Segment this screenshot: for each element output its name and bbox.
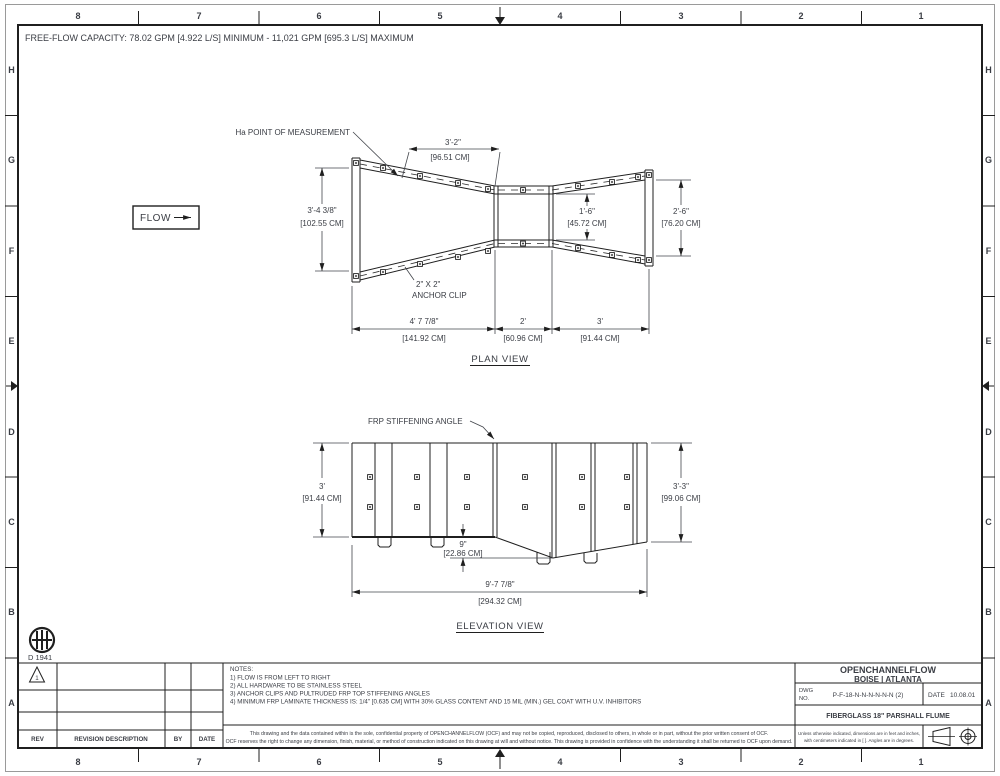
dim-throat-width: 1'-6" [45.72 CM] (556, 194, 607, 240)
grid-row-label: D (8, 427, 15, 437)
grid-col-label: 5 (437, 11, 442, 21)
projection-target-icon (959, 728, 977, 746)
grid-col-label: 1 (918, 757, 923, 767)
stiffener-callout: FRP STIFFENING ANGLE (368, 417, 494, 439)
dwg-no-label: NO. (799, 696, 810, 702)
grid-col-label: 3 (678, 757, 683, 767)
date-label: DATE (928, 692, 946, 699)
disclaimer-line: OCF reserves the right to change any dim… (226, 739, 793, 745)
dim-text-metric: [22.86 CM] (443, 549, 482, 558)
units-note-line: Unless otherwise indicated, dimensions a… (798, 731, 920, 736)
grid-row-label: A (8, 698, 15, 708)
grid-row-label: B (985, 607, 992, 617)
dim-text: 3'-2" (445, 138, 461, 147)
grid-row-label: C (8, 517, 15, 527)
grid-row-label: F (986, 246, 992, 256)
astm-logo-mark (32, 630, 52, 650)
rev-header: REV (31, 736, 45, 743)
dim-text: 9" (459, 540, 466, 549)
dwg-label: DWG (799, 688, 814, 694)
flow-direction-label: FLOW (133, 206, 199, 229)
dim-text: 4' 7 7/8" (410, 317, 439, 326)
ha-point-label: Ha POINT OF MEASUREMENT (235, 128, 350, 137)
grid-col-label: 8 (75, 757, 80, 767)
grid-col-label: 4 (557, 757, 562, 767)
dim-text-metric: [99.06 CM] (661, 494, 700, 503)
dim-right-height: 3'-3" [99.06 CM] (651, 443, 701, 542)
revision-marker-triangle: 1 (30, 667, 45, 682)
dwg-number: P-F-18-N-N-N-N-N-N (2) (833, 692, 904, 699)
note-item: 1) FLOW IS FROM LEFT TO RIGHT (230, 675, 331, 682)
center-arrow-right (982, 381, 994, 391)
anchor-clips-plan (354, 161, 652, 279)
dim-text-metric: [91.44 CM] (302, 494, 341, 503)
dim-text-metric: [91.44 CM] (580, 334, 619, 343)
drawing-title: FIBERGLASS 18" PARSHALL FLUME (826, 713, 950, 720)
grid-col-label: 6 (316, 757, 321, 767)
inner-border (18, 25, 982, 748)
grid-col-label: 5 (437, 757, 442, 767)
grid-row-label: H (8, 65, 15, 75)
grid-row-label: C (985, 517, 992, 527)
dim-text-metric: [96.51 CM] (430, 153, 469, 162)
view-title: PLAN VIEW (471, 354, 528, 365)
grid-col-label: 7 (196, 757, 201, 767)
plan-view-title: PLAN VIEW (470, 354, 530, 366)
dim-text-metric: [60.96 CM] (503, 334, 542, 343)
anchor-clip-callout: 2" X 2" ANCHOR CLIP (405, 267, 467, 300)
astm-logo: D 1941 (28, 628, 54, 662)
standard-ref-label: D 1941 (28, 653, 52, 662)
dim-left-height: 3' [91.44 CM] (302, 443, 349, 537)
title-block: OPENCHANNELFLOW BOISE | ATLANTA DWG NO. … (795, 665, 982, 748)
dim-text-metric: [294.32 CM] (478, 597, 522, 606)
grid-col-label: 6 (316, 11, 321, 21)
third-angle-projection-symbol (928, 728, 977, 746)
grid-col-label: 8 (75, 11, 80, 21)
disclaimer-block: This drawing and the data contained with… (223, 725, 795, 745)
dim-text-metric: [102.55 CM] (300, 219, 344, 228)
clip-size-label: 2" X 2" (416, 280, 441, 289)
grid-row-label: D (985, 427, 992, 437)
notes-title: NOTES: (230, 666, 253, 673)
revision-description-header: REVISION DESCRIPTION (74, 736, 148, 743)
stiffener-leader-line (470, 421, 494, 439)
revision-marker-number: 1 (35, 675, 39, 682)
dim-text-metric: [141.92 CM] (402, 334, 446, 343)
grid-row-label: H (985, 65, 992, 75)
dim-text: 3'-4 3/8" (307, 206, 336, 215)
grid-row-label: G (8, 155, 15, 165)
company-name: OPENCHANNELFLOW (840, 665, 936, 675)
grid-row-label: E (985, 336, 991, 346)
revision-table: 1 REV REVISION DESCRIPTION BY DATE (18, 663, 223, 748)
ha-point-callout: Ha POINT OF MEASUREMENT (235, 128, 398, 176)
dim-overall-length: 9'-7 7/8" [294.32 CM] (352, 545, 647, 606)
dim-text: 2' (520, 317, 526, 326)
date-value: 10.08.01 (950, 692, 976, 699)
parshall-flume-drawing: 8 7 6 5 4 3 2 1 8 7 6 5 4 3 2 1 H G F E … (0, 0, 1000, 776)
capacity-note: FREE-FLOW CAPACITY: 78.02 GPM [4.922 L/S… (25, 33, 414, 43)
center-arrow-top (495, 7, 505, 25)
by-header: BY (174, 736, 183, 743)
plan-view: FLOW Ha POINT OF MEASUREMENT 3'-2" [96.5… (133, 128, 701, 366)
grid-row-label: F (9, 246, 15, 256)
grid-row-label: E (8, 336, 14, 346)
dim-text: 1'-6" (579, 207, 595, 216)
grid-labels: 8 7 6 5 4 3 2 1 8 7 6 5 4 3 2 1 H G F E … (8, 11, 992, 767)
note-item: 4) MINIMUM FRP LAMINATE THICKNESS IS: 1/… (230, 699, 641, 706)
dim-text: 3' (319, 482, 325, 491)
elevation-view: FRP STIFFENING ANGLE 3' [91.44 CM] 3'-3"… (302, 417, 700, 633)
dim-bottom-lengths: 4' 7 7/8" [141.92 CM] 2' [60.96 CM] 3' [… (352, 250, 649, 343)
grid-col-label: 1 (918, 11, 923, 21)
dim-text: 3'-3" (673, 482, 689, 491)
flume-plan-outline (352, 158, 653, 282)
center-arrow-bottom (495, 749, 505, 769)
note-item: 3) ANCHOR CLIPS AND PULTRUDED FRP TOP ST… (230, 691, 430, 698)
grid-ticks (5, 11, 995, 762)
note-item: 2) ALL HARDWARE TO BE STAINLESS STEEL (230, 683, 362, 690)
dim-text-metric: [76.20 CM] (661, 219, 700, 228)
drawing-sheet: 8 7 6 5 4 3 2 1 8 7 6 5 4 3 2 1 H G F E … (0, 0, 1000, 776)
dim-text: 3' (597, 317, 603, 326)
dim-text: 2'-6" (673, 207, 689, 216)
view-title: ELEVATION VIEW (456, 621, 543, 632)
date-header: DATE (199, 736, 215, 743)
grid-col-label: 2 (798, 757, 803, 767)
company-locations: BOISE | ATLANTA (854, 675, 922, 684)
grid-row-label: A (985, 698, 992, 708)
dim-floor-drop: 9" [22.86 CM] (443, 524, 553, 572)
anchor-clips-elevation (368, 475, 630, 510)
dim-entrance-width: 3'-4 3/8" [102.55 CM] (300, 168, 349, 271)
grid-col-label: 3 (678, 11, 683, 21)
sheet-border (5, 5, 995, 772)
grid-col-label: 4 (557, 11, 562, 21)
flume-elevation-outline (352, 443, 647, 564)
dim-text: 9'-7 7/8" (485, 580, 514, 589)
clip-name-label: ANCHOR CLIP (412, 291, 467, 300)
grid-row-label: B (8, 607, 15, 617)
notes-block: NOTES: 1) FLOW IS FROM LEFT TO RIGHT 2) … (230, 666, 641, 706)
elevation-view-title: ELEVATION VIEW (456, 621, 544, 633)
disclaimer-line: This drawing and the data contained with… (250, 731, 768, 737)
grid-col-label: 7 (196, 11, 201, 21)
flow-text: FLOW (140, 213, 171, 224)
outer-border (6, 5, 995, 772)
dim-text-metric: [45.72 CM] (567, 219, 606, 228)
grid-row-label: G (985, 155, 992, 165)
grid-col-label: 2 (798, 11, 803, 21)
units-note-line: with centimeters indicated in [ ]. Angle… (804, 738, 914, 743)
dim-exit-width: 2'-6" [76.20 CM] (656, 180, 701, 256)
stiffener-label: FRP STIFFENING ANGLE (368, 417, 463, 426)
center-arrow-left (6, 381, 18, 391)
